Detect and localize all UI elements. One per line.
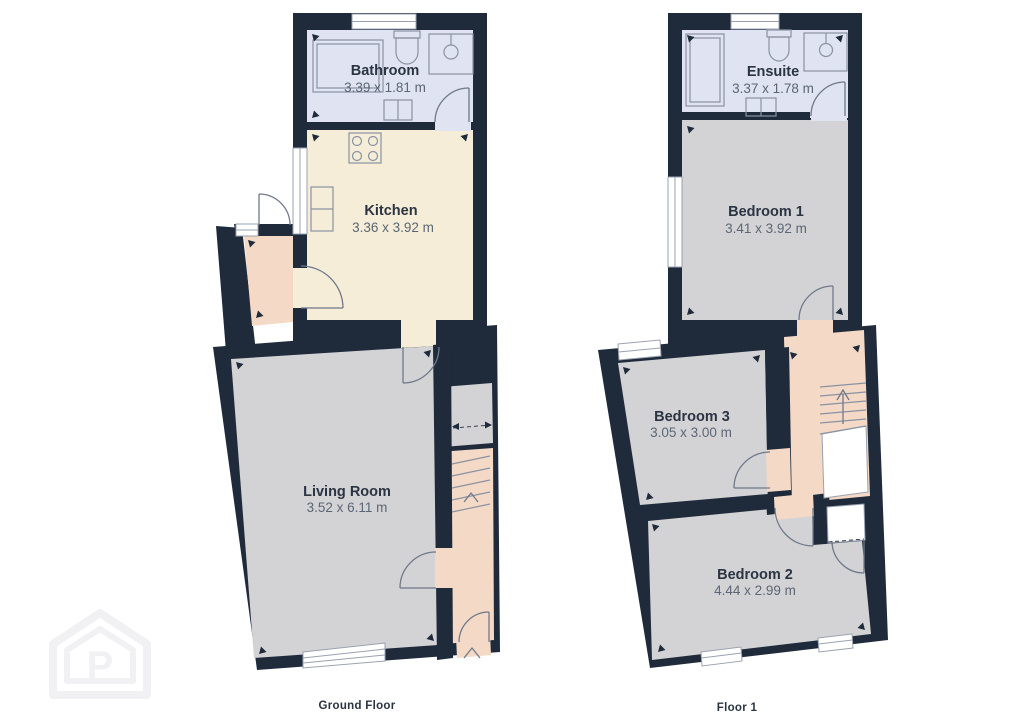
closet xyxy=(827,504,865,543)
watermark-logo: P xyxy=(53,613,147,695)
room-name-ensuite: Ensuite xyxy=(747,64,799,80)
floor-labels: Ground Floor Floor 1 xyxy=(318,700,757,714)
front-door-opening xyxy=(456,633,491,658)
room-dims-living: 3.52 x 6.11 m xyxy=(307,500,388,515)
entrance-hall xyxy=(244,236,293,326)
stairwell-void xyxy=(822,426,868,498)
room-dims-bathroom: 3.39 x 1.81 m xyxy=(344,80,426,95)
door-arc xyxy=(259,194,290,225)
floorplan-canvas: P xyxy=(0,0,1024,724)
watermark-letter: P xyxy=(87,644,114,688)
floor-label-ground: Ground Floor xyxy=(318,700,395,712)
room-name-kitchen: Kitchen xyxy=(364,203,417,219)
room-name-bathroom: Bathroom xyxy=(351,63,419,79)
room-dims-kitchen: 3.36 x 3.92 m xyxy=(352,220,434,235)
room-dims-ensuite: 3.37 x 1.78 m xyxy=(732,81,814,96)
room-dims-bedroom3: 3.05 x 3.00 m xyxy=(650,425,732,440)
room-name-bedroom1: Bedroom 1 xyxy=(728,204,804,220)
room-name-bedroom3: Bedroom 3 xyxy=(654,409,730,425)
room-bedroom1 xyxy=(682,120,848,320)
floorplan-drawing: P xyxy=(0,0,1024,724)
kitchen-floors xyxy=(293,130,473,348)
room-dims-bedroom1: 3.41 x 3.92 m xyxy=(725,221,807,236)
floor-label-first: Floor 1 xyxy=(717,702,758,714)
room-name-bedroom2: Bedroom 2 xyxy=(717,567,793,583)
hall-kitchen-doorway xyxy=(293,268,307,308)
room-name-living: Living Room xyxy=(303,484,391,500)
room-dims-bedroom2: 4.44 x 2.99 m xyxy=(714,583,796,598)
kitchen-living-doorway xyxy=(401,320,436,348)
